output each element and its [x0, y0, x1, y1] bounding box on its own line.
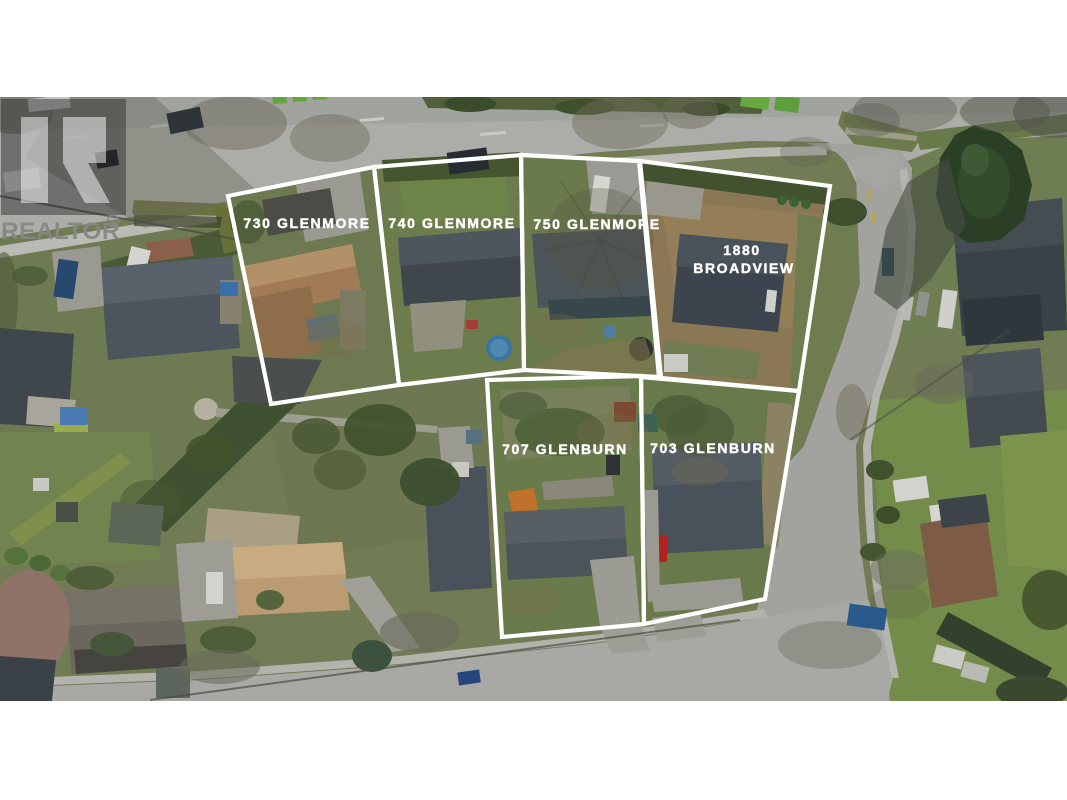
svg-text:BROADVIEW: BROADVIEW: [693, 260, 795, 276]
svg-text:703 GLENBURN: 703 GLENBURN: [650, 440, 776, 456]
svg-text:740 GLENMORE: 740 GLENMORE: [388, 215, 515, 231]
svg-text:750 GLENMORE: 750 GLENMORE: [533, 216, 660, 232]
svg-text:1880: 1880: [723, 242, 761, 258]
svg-text:707 GLENBURN: 707 GLENBURN: [502, 441, 628, 457]
svg-text:730 GLENMORE: 730 GLENMORE: [243, 215, 370, 231]
svg-text:REALTOR: REALTOR: [1, 218, 120, 245]
svg-text:R: R: [111, 219, 117, 228]
